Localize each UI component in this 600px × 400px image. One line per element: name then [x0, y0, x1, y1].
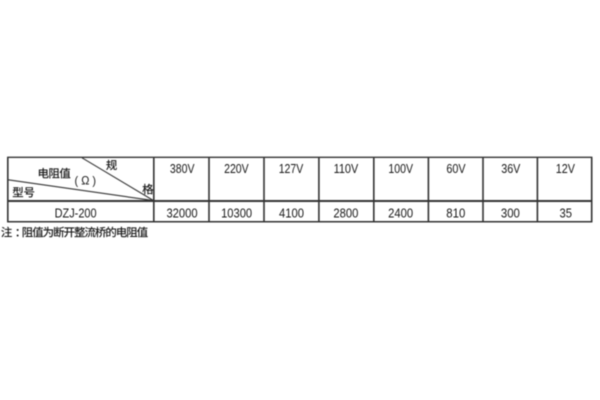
svg-text:300: 300 — [501, 206, 520, 221]
svg-text:35: 35 — [560, 206, 573, 221]
svg-text:110V: 110V — [334, 161, 359, 176]
svg-text:4100: 4100 — [279, 206, 304, 221]
svg-text:60V: 60V — [446, 161, 466, 176]
svg-text:127V: 127V — [279, 161, 304, 176]
svg-text:10300: 10300 — [221, 206, 252, 221]
svg-text:380V: 380V — [170, 161, 195, 176]
svg-text:32000: 32000 — [166, 206, 197, 221]
svg-text:12V: 12V — [556, 161, 576, 176]
svg-text:100V: 100V — [388, 161, 413, 176]
svg-text:2800: 2800 — [333, 206, 358, 221]
svg-text:36V: 36V — [501, 161, 521, 176]
svg-text:2400: 2400 — [388, 206, 413, 221]
svg-text:810: 810 — [446, 206, 465, 221]
svg-text:220V: 220V — [224, 161, 249, 176]
svg-text:( Ω ): ( Ω ) — [75, 175, 97, 188]
svg-text:DZJ-200: DZJ-200 — [55, 206, 97, 221]
